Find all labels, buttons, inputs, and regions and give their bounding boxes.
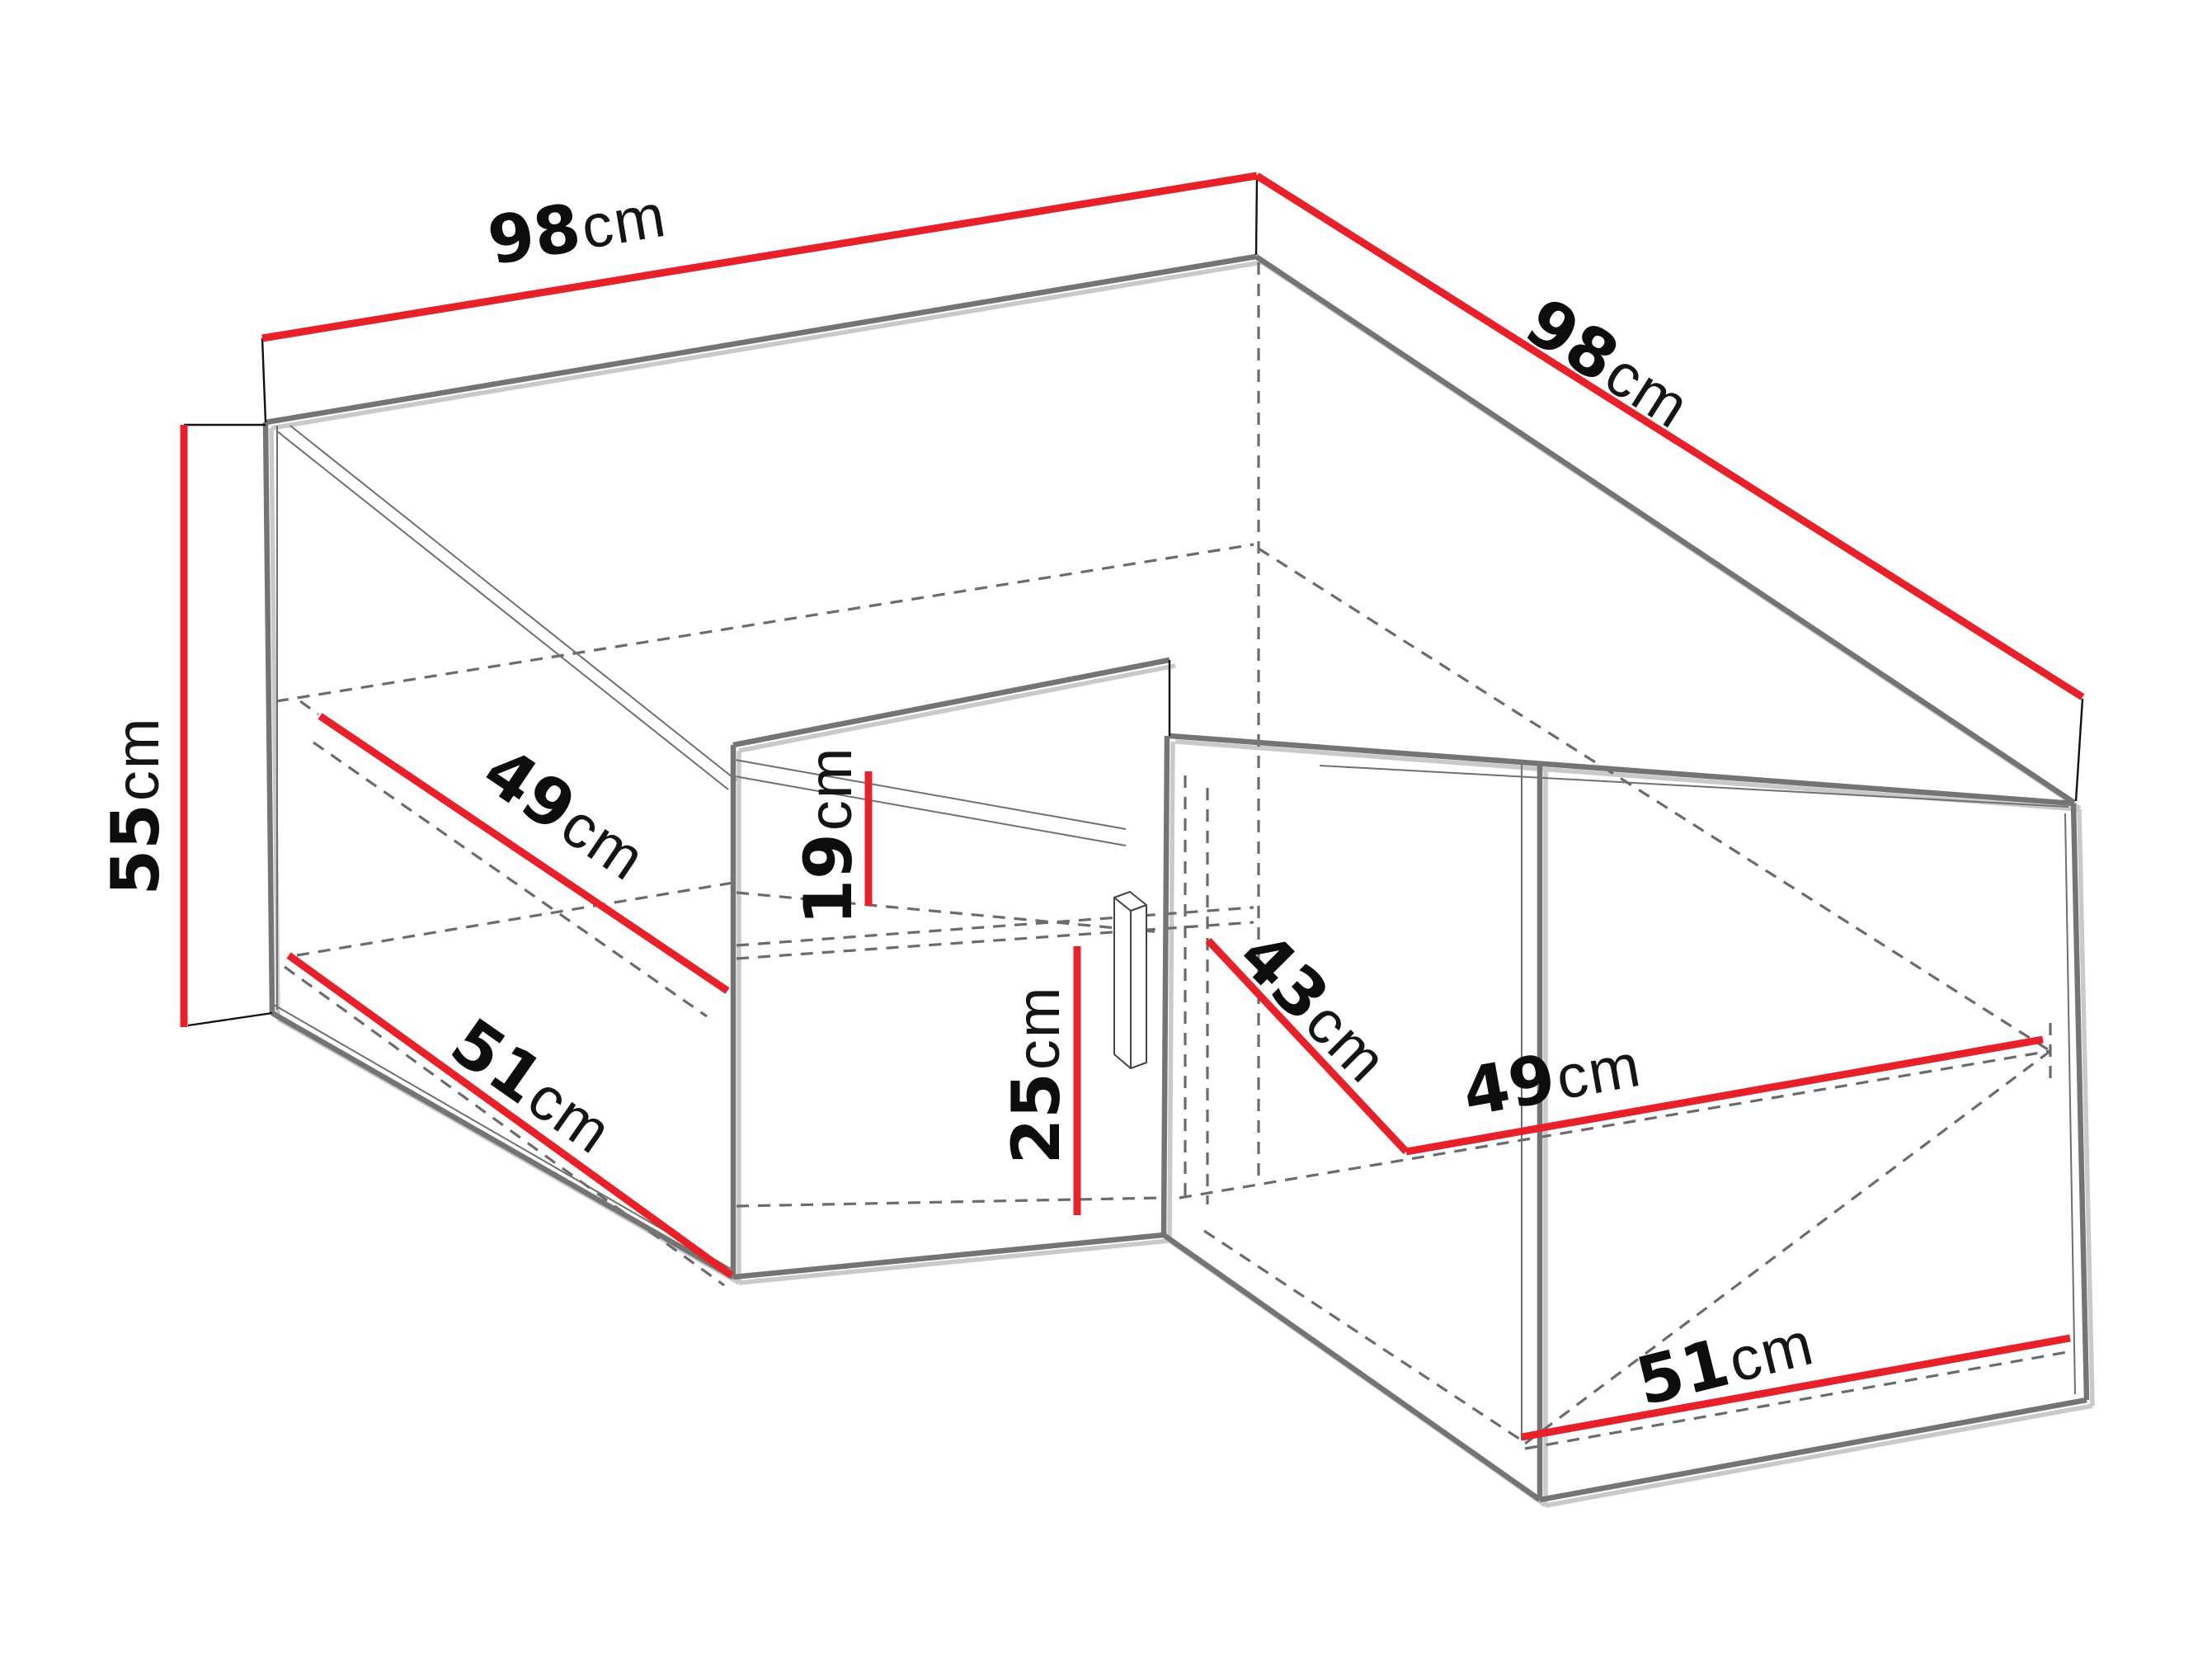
dim-unit: cm (1004, 986, 1072, 1071)
dim-line-98-top-left (262, 176, 1257, 338)
dim-unit: cm (103, 717, 172, 802)
hidden-bottom-corner-a (1204, 1231, 1522, 1440)
dim-value: 55 (97, 804, 174, 895)
cabinet-dimension-diagram: 98cm98cm55cm49cm51cm19cm25cm43cm49cm51cm (0, 0, 2212, 1659)
back-left-top-edge (266, 257, 1256, 422)
corner-shelf-edge-a (735, 760, 1126, 829)
tick-98-left-end (262, 338, 266, 422)
tick-apex (1256, 177, 1257, 255)
hidden-shelf-front-left (297, 883, 733, 955)
hidden-tick-49-start (300, 701, 318, 714)
dim-value: 25 (998, 1072, 1075, 1164)
door-handle (1114, 892, 1146, 1068)
dim-value: 51 (1629, 1324, 1737, 1421)
dim-line-98-top-right (1257, 176, 2083, 697)
right-top-inner-edge (1320, 766, 2068, 807)
handle-front (1114, 898, 1131, 1068)
bottom-front-edge (1540, 1400, 2087, 1500)
corner-face-bottom-edge-shadow (739, 1241, 1170, 1283)
dimension-labels: 98cm98cm55cm49cm51cm19cm25cm43cm49cm51cm (97, 175, 1821, 1421)
inner-corner-vertical (1164, 736, 1167, 1235)
tick-98-right-end (2076, 699, 2083, 801)
dim-label-shelf-gap-corner: 19cm (790, 747, 867, 926)
outline-shadows (271, 262, 2092, 1506)
interior-corner-post-b (290, 426, 737, 780)
dim-value: 19 (790, 833, 867, 925)
dim-label-width-top-right: 98cm (1513, 283, 1705, 444)
dimension-lines (184, 176, 2083, 1437)
inner-corner-vertical-shadow (1170, 742, 1173, 1241)
hidden-bottom-corner-b (1525, 1051, 2050, 1444)
dim-label-width-top-left: 98cm (482, 175, 671, 280)
hidden-bottom-inner-left (285, 967, 724, 1285)
dim-unit: cm (796, 747, 864, 832)
interior-thin-lines (274, 426, 2075, 1440)
corner-face-bottom-edge (733, 1235, 1164, 1277)
cabinet-outline (266, 257, 2087, 1500)
back-left-top-edge-shadow (271, 262, 1262, 428)
dim-unit: cm (577, 181, 671, 262)
dim-value: 98 (482, 189, 586, 280)
corner-cabinet-drawing: 98cm98cm55cm49cm51cm19cm25cm43cm49cm51cm (0, 0, 2212, 1659)
right-wing-top-edge (1170, 736, 2073, 804)
back-right-top-edge (1256, 257, 2074, 803)
dim-unit: cm (1551, 1030, 1647, 1113)
dim-label-depth-right-inner: 43cm (1224, 917, 1405, 1097)
dim-value: 49 (1457, 1039, 1561, 1131)
corner-face-top-edge (733, 660, 1170, 745)
corner-face-top-edge-shadow (739, 666, 1175, 751)
dim-label-depth-left-lower: 51cm (437, 1003, 628, 1169)
handle-side (1131, 905, 1146, 1068)
hidden-corner-bottom (737, 1198, 1161, 1206)
dim-label-door-corner-height: 25cm (998, 986, 1075, 1165)
right-side-bottom-slope (1164, 1235, 1540, 1500)
dim-label-height-left: 55cm (97, 717, 174, 896)
tick-55-bottom (188, 1013, 272, 1025)
